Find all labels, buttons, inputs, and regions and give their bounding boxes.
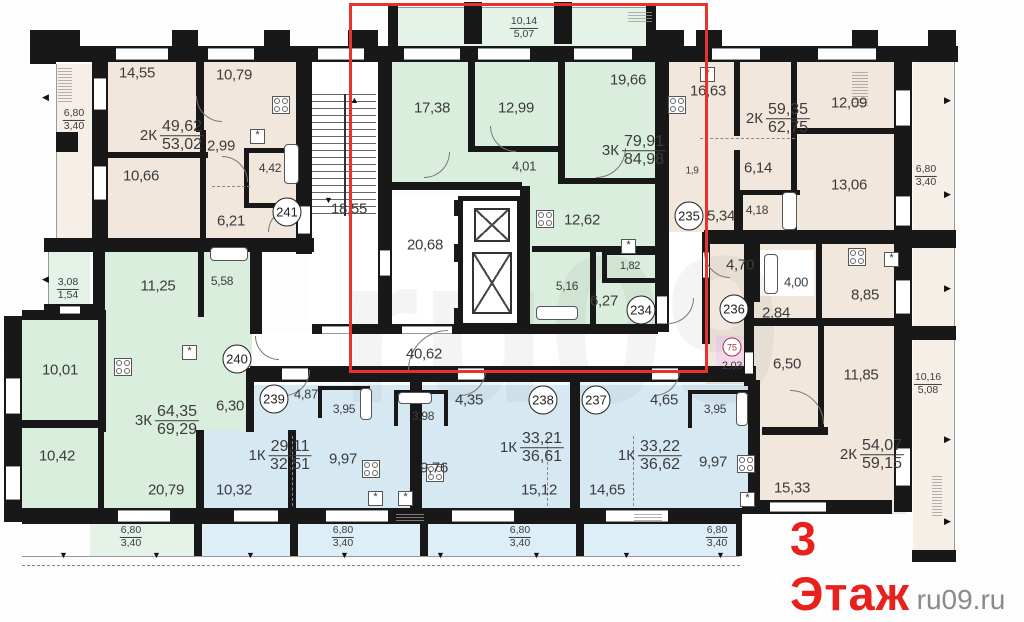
balcony-area-label: 6,803,40 <box>509 525 531 549</box>
storage-number-badge: 75 <box>723 338 742 357</box>
area-label: 9,76 <box>420 460 448 477</box>
wall <box>194 524 202 556</box>
vent-icon: * <box>884 252 899 267</box>
wall <box>30 30 56 64</box>
wall <box>98 430 104 514</box>
stove-icon <box>362 460 380 478</box>
wall <box>738 190 743 234</box>
wall <box>570 368 580 514</box>
direction-arrow: ▼ <box>59 551 68 560</box>
wall <box>93 245 105 317</box>
apartment-area-label: 3К64,3569,29 <box>135 403 199 439</box>
wall <box>444 390 448 426</box>
annotation-block <box>396 513 424 521</box>
area-label: 10,79 <box>216 67 252 84</box>
bathtub-icon <box>398 392 432 404</box>
wall <box>54 30 80 48</box>
area-label: 8,85 <box>851 287 879 304</box>
area-label: 6,21 <box>217 213 245 230</box>
wall <box>98 310 106 432</box>
wall <box>4 500 22 522</box>
window <box>116 48 168 60</box>
area-label: 4,65 <box>650 392 678 409</box>
wall-thin-line <box>954 62 955 556</box>
window <box>452 510 514 522</box>
window <box>896 280 910 314</box>
area-label: 10,42 <box>39 448 75 465</box>
balcony-area-label: 6,803,40 <box>706 525 728 549</box>
direction-arrow: ▼ <box>340 551 349 560</box>
area-label: 12,09 <box>831 95 867 112</box>
vent-icon: * <box>182 345 197 360</box>
bathtub-icon <box>764 254 778 294</box>
area-label: 6,14 <box>744 160 772 177</box>
apartment-area-label: 2К59,3562,75 <box>746 101 810 137</box>
window <box>94 166 106 200</box>
apartment-number-badge: 238 <box>529 386 558 415</box>
dashed-line <box>22 565 740 566</box>
area-label: 4,70 <box>726 257 754 274</box>
balcony-area-label: 6,803,40 <box>120 525 142 549</box>
window <box>326 510 388 522</box>
wall <box>198 245 204 317</box>
wall <box>688 390 692 428</box>
wall <box>762 427 828 435</box>
vent-icon: * <box>398 491 413 506</box>
bathtub-icon <box>210 247 248 261</box>
wall <box>754 244 760 302</box>
area-label: 6,50 <box>773 356 801 373</box>
area-label: 14,65 <box>589 482 625 499</box>
highlight-red-box <box>349 3 708 373</box>
area-label: 6,30 <box>216 398 244 415</box>
bathtub-icon <box>360 388 372 420</box>
wall <box>264 30 290 48</box>
wall <box>928 30 956 48</box>
wall-thin-line <box>22 556 92 557</box>
balcony-area-label: 6,803,40 <box>63 108 85 132</box>
area-label: 13,06 <box>831 177 867 194</box>
dashed-line <box>212 186 250 187</box>
wall <box>22 420 100 428</box>
area-label: 4,35 <box>455 392 483 409</box>
direction-arrow: ▼ <box>622 551 631 560</box>
apartment-number-badge: 236 <box>720 295 749 324</box>
window <box>818 48 876 60</box>
apartment-area-label: 1К33,2136,61 <box>500 430 564 466</box>
bathtub-icon <box>736 392 748 426</box>
balcony-area-label: 3,081,54 <box>57 277 79 301</box>
direction-arrow: ▼ <box>246 551 255 560</box>
room <box>100 430 196 514</box>
area-label: 2,99 <box>207 138 235 155</box>
direction-arrow: ▼ <box>436 551 445 560</box>
area-label: 10,01 <box>42 362 78 379</box>
area-label: 3,98 <box>412 409 434 423</box>
area-label: 2,84 <box>762 305 790 322</box>
wall <box>912 326 956 340</box>
room <box>426 524 576 556</box>
window <box>118 510 170 522</box>
window <box>6 378 20 414</box>
annotation-block <box>932 476 942 516</box>
balcony-area-label: 6,803,40 <box>332 525 354 549</box>
direction-arrow: ◀ <box>42 275 49 284</box>
vent-icon: * <box>368 491 383 506</box>
area-label: 10,32 <box>216 482 252 499</box>
wall <box>246 368 254 432</box>
wall <box>734 62 740 136</box>
dashed-line <box>700 138 795 139</box>
area-label: 5,34 <box>707 208 735 225</box>
wall <box>318 386 322 418</box>
wall <box>736 524 742 556</box>
vent-icon: * <box>740 492 755 507</box>
balcony-area-label: 10,165,08 <box>914 372 942 396</box>
apartment-area-label: 2К49,6253,02 <box>140 118 204 154</box>
wall-thin-line <box>56 64 57 240</box>
direction-arrow: ▶ <box>944 190 951 199</box>
window <box>712 48 760 60</box>
stove-icon <box>737 455 755 473</box>
window <box>208 48 254 60</box>
apartment-area-label: 1К29,1132,51 <box>249 438 312 474</box>
floor-plan-canvas: ru09 14,5510,792,9910,664,426,2117,3812,… <box>0 0 1024 622</box>
area-label: 15,33 <box>774 480 810 497</box>
area-label: 4,18 <box>746 203 768 217</box>
window <box>896 90 910 126</box>
wall <box>852 30 878 48</box>
window <box>60 306 80 314</box>
apartment-area-label: 2К54,0759,15 <box>840 437 904 473</box>
annotation-block <box>58 66 72 102</box>
wall <box>704 230 905 244</box>
area-label: 10,66 <box>123 168 159 185</box>
apartment-number-badge: 241 <box>273 198 302 227</box>
stove-icon <box>114 358 132 376</box>
area-label: 4,42 <box>259 161 281 175</box>
wall <box>420 524 428 556</box>
direction-arrow: ▼ <box>716 551 725 560</box>
area-label: 4,00 <box>784 275 808 290</box>
apartment-number-badge: 239 <box>260 385 289 414</box>
wall <box>250 238 262 334</box>
direction-arrow: ▶ <box>944 284 951 293</box>
area-label: 2,03 <box>722 360 742 372</box>
wall-thin-line <box>90 556 740 557</box>
area-label: 15,12 <box>521 482 557 499</box>
window <box>234 510 278 522</box>
area-label: 3,95 <box>704 402 726 416</box>
area-label: 9,97 <box>329 451 357 468</box>
wall <box>912 230 956 248</box>
area-label: 20,79 <box>148 482 184 499</box>
window <box>745 352 753 374</box>
annotation-block <box>634 513 662 521</box>
apartment-area-label: 1К33,2236,62 <box>618 438 682 474</box>
window <box>322 326 352 334</box>
direction-arrow: ▼ <box>532 551 541 560</box>
area-label: 4,87 <box>294 387 318 402</box>
wall <box>196 430 204 514</box>
window <box>896 196 910 226</box>
area-label: 9,97 <box>699 454 727 471</box>
wall <box>44 238 98 252</box>
wall <box>290 524 298 556</box>
stove-icon <box>272 96 290 114</box>
site-watermark: ru09.ru <box>917 584 1006 616</box>
apartment-number-badge: 240 <box>223 345 252 374</box>
area-label: 5,58 <box>211 274 233 288</box>
room <box>90 524 196 556</box>
area-label: 14,55 <box>119 65 155 82</box>
wall <box>172 30 198 48</box>
direction-arrow: ▶ <box>944 435 951 444</box>
window <box>6 466 20 500</box>
area-label: 11,25 <box>141 278 176 295</box>
balcony-area-label: 6,803,40 <box>915 164 937 188</box>
wall <box>576 524 584 556</box>
window <box>94 78 106 110</box>
direction-arrow: ▶ <box>944 96 951 105</box>
direction-arrow: ◀ <box>42 93 49 102</box>
room <box>913 62 955 238</box>
area-label: 3,95 <box>333 402 355 416</box>
bathtub-icon <box>782 192 797 230</box>
room <box>296 524 422 556</box>
wall <box>56 132 78 152</box>
apartment-number-badge: 237 <box>582 386 611 415</box>
direction-arrow: ▼ <box>152 551 161 560</box>
area-label: 11,85 <box>844 367 879 384</box>
wall <box>816 244 822 320</box>
vent-icon: * <box>250 129 265 144</box>
bathtub-icon <box>284 144 299 184</box>
stove-icon <box>848 248 866 266</box>
room <box>22 314 102 514</box>
wall <box>795 128 905 134</box>
